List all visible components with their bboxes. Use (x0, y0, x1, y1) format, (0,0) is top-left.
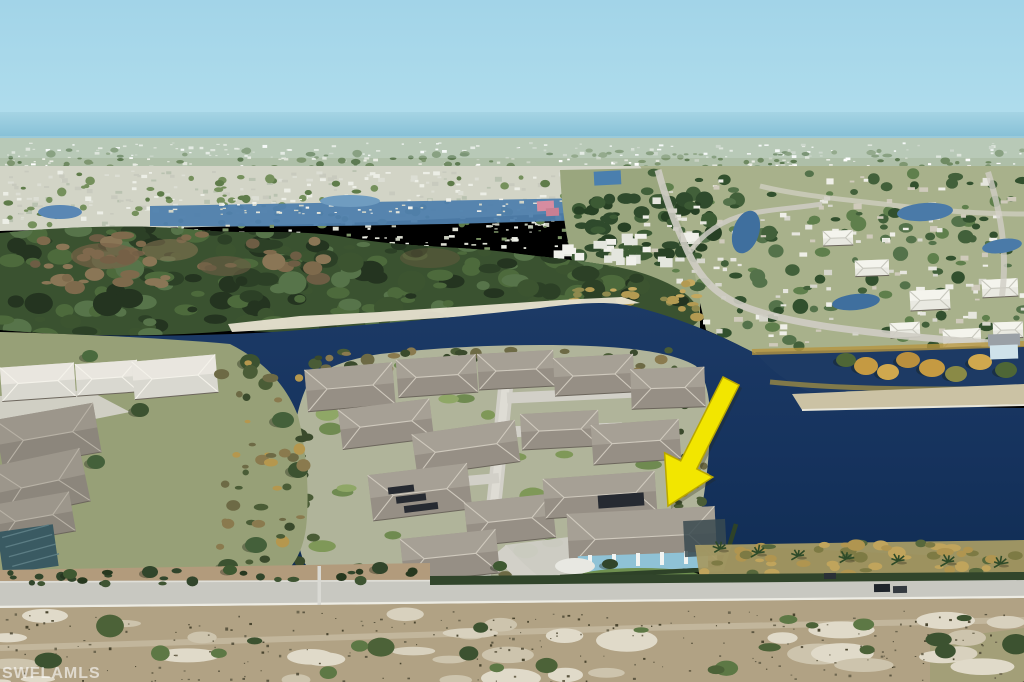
house (520, 410, 600, 450)
texture-dot (166, 171, 171, 174)
texture-dot (89, 162, 93, 164)
texture-dot (895, 631, 897, 632)
texture-dot (240, 188, 243, 190)
texture-dot (317, 212, 321, 214)
texture-dot (556, 636, 557, 637)
texture-dot (946, 256, 956, 261)
texture-dot (30, 260, 41, 268)
texture-dot (308, 540, 335, 552)
texture-dot (96, 615, 124, 638)
texture-dot (533, 203, 537, 204)
texture-dot (363, 160, 366, 162)
texture-dot (607, 629, 610, 631)
texture-dot (145, 198, 150, 202)
texture-dot (719, 655, 721, 656)
texture-dot (175, 632, 176, 633)
texture-dot (253, 196, 259, 200)
texture-dot (850, 216, 866, 231)
texture-dot (938, 188, 945, 191)
texture-dot (69, 626, 71, 627)
texture-dot (900, 281, 911, 289)
texture-dot (395, 208, 398, 209)
texture-dot (728, 611, 731, 613)
texture-dot (807, 220, 816, 225)
texture-dot (879, 291, 892, 299)
texture-dot (562, 229, 566, 232)
texture-dot (249, 178, 256, 181)
texture-dot (28, 629, 30, 630)
texture-dot (575, 222, 589, 229)
texture-dot (358, 209, 361, 211)
texture-dot (520, 632, 521, 633)
texture-dot (41, 281, 52, 285)
texture-dot (475, 178, 479, 181)
texture-dot (779, 666, 781, 667)
texture-dot (27, 198, 32, 200)
texture-dot (459, 646, 478, 660)
texture-dot (132, 211, 139, 216)
texture-dot (860, 568, 872, 572)
texture-dot (420, 184, 425, 187)
texture-dot (664, 347, 673, 353)
texture-dot (703, 320, 710, 325)
texture-dot (462, 196, 467, 200)
texture-dot (252, 202, 256, 204)
texture-dot (157, 191, 165, 197)
texture-dot (400, 350, 410, 357)
texture-dot (307, 534, 320, 542)
texture-dot (19, 213, 24, 215)
texture-dot (158, 582, 166, 586)
texture-dot (218, 670, 220, 672)
texture-dot (761, 226, 777, 240)
texture-dot (689, 670, 691, 671)
texture-dot (766, 669, 767, 670)
texture-dot (362, 211, 366, 213)
car (893, 586, 907, 593)
tree (493, 561, 507, 571)
texture-dot (995, 677, 997, 679)
texture-dot (653, 662, 654, 663)
texture-dot (295, 435, 307, 442)
texture-dot (249, 443, 256, 447)
texture-dot (951, 658, 1015, 675)
texture-dot (9, 176, 13, 178)
texture-dot (198, 679, 200, 681)
texture-dot (719, 239, 724, 243)
texture-dot (615, 624, 618, 627)
texture-dot (356, 569, 363, 575)
texture-dot (289, 649, 291, 651)
texture-dot (83, 640, 85, 641)
texture-dot (231, 643, 234, 645)
texture-dot (352, 170, 356, 172)
texture-dot (982, 645, 983, 646)
texture-dot (405, 293, 416, 299)
texture-dot (930, 226, 937, 232)
texture-dot (495, 651, 498, 653)
texture-dot (306, 179, 313, 182)
texture-dot (641, 187, 654, 195)
texture-dot (484, 618, 517, 632)
texture-dot (968, 312, 977, 319)
tree (131, 403, 149, 417)
texture-dot (431, 191, 434, 193)
texture-dot (230, 629, 232, 630)
texture-dot (348, 655, 351, 657)
texture-dot (89, 644, 92, 645)
texture-dot (214, 647, 215, 648)
texture-dot (195, 188, 198, 190)
texture-dot (985, 161, 991, 163)
texture-dot (45, 165, 47, 166)
texture-dot (110, 213, 114, 215)
texture-dot (506, 229, 509, 230)
texture-dot (613, 162, 617, 164)
texture-dot (279, 449, 291, 458)
texture-dot (730, 258, 736, 261)
texture-dot (835, 674, 837, 676)
texture-dot (335, 618, 336, 619)
texture-dot (453, 611, 455, 612)
texture-dot (881, 545, 892, 551)
texture-dot (525, 224, 528, 226)
texture-dot (1003, 615, 1005, 617)
texture-dot (933, 274, 938, 277)
texture-dot (27, 207, 35, 211)
texture-dot (212, 171, 216, 173)
texture-dot (834, 662, 836, 663)
texture-dot (880, 224, 888, 229)
texture-dot (494, 635, 497, 637)
texture-dot (369, 209, 371, 210)
texture-dot (718, 179, 723, 182)
texture-dot (125, 631, 127, 633)
texture-dot (385, 248, 397, 253)
texture-dot (303, 261, 322, 275)
texture-dot (827, 624, 829, 625)
texture-dot (886, 658, 887, 659)
texture-dot (265, 174, 275, 183)
texture-dot (567, 615, 570, 617)
texture-dot (266, 645, 269, 647)
texture-dot (816, 329, 821, 331)
texture-dot (473, 622, 488, 632)
texture-dot (659, 624, 662, 626)
texture-dot (491, 642, 493, 644)
texture-dot (805, 341, 809, 343)
texture-dot (115, 191, 122, 194)
texture-dot (188, 176, 194, 181)
texture-dot (793, 613, 795, 616)
texture-dot (718, 158, 723, 161)
texture-dot (187, 576, 199, 586)
texture-dot (425, 242, 428, 243)
texture-dot (404, 623, 405, 624)
texture-dot (551, 175, 555, 177)
texture-dot (567, 248, 576, 252)
texture-dot (262, 240, 283, 249)
texture-dot (776, 165, 778, 166)
texture-dot (658, 257, 666, 262)
texture-dot (895, 158, 900, 161)
texture-dot (780, 213, 787, 218)
texture-dot (626, 256, 636, 265)
texture-dot (451, 172, 456, 175)
texture-dot (376, 630, 378, 631)
texture-dot (982, 565, 991, 571)
texture-dot (826, 302, 832, 307)
texture-dot (10, 576, 17, 580)
texture-dot (783, 289, 788, 293)
texture-dot (742, 321, 753, 330)
texture-dot (34, 317, 45, 323)
texture-dot (187, 631, 216, 643)
texture-dot (159, 667, 162, 669)
texture-dot (903, 228, 909, 230)
texture-dot (535, 619, 536, 620)
texture-dot (675, 257, 684, 261)
texture-dot (1013, 163, 1015, 164)
texture-dot (609, 215, 617, 219)
texture-dot (593, 241, 606, 249)
texture-dot (508, 649, 510, 651)
texture-dot (203, 190, 208, 194)
texture-dot (187, 307, 197, 313)
texture-dot (416, 644, 417, 645)
texture-dot (669, 191, 673, 193)
texture-dot (81, 217, 87, 221)
texture-dot (856, 240, 861, 243)
texture-dot (85, 196, 91, 201)
texture-dot (154, 196, 158, 198)
texture-dot (945, 284, 953, 289)
texture-dot (54, 648, 57, 651)
texture-dot (243, 394, 251, 401)
texture-dot (519, 175, 524, 179)
texture-dot (221, 481, 230, 488)
texture-dot (889, 675, 891, 677)
texture-dot (867, 234, 873, 238)
texture-dot (279, 655, 281, 658)
tree (142, 566, 158, 578)
texture-dot (588, 624, 590, 626)
texture-dot (343, 245, 355, 250)
texture-dot (854, 204, 862, 210)
texture-dot (877, 216, 883, 219)
texture-dot (406, 571, 416, 577)
texture-dot (336, 573, 347, 581)
texture-dot (297, 611, 300, 614)
texture-dot (982, 253, 988, 258)
texture-dot (697, 497, 707, 506)
texture-dot (295, 374, 303, 381)
texture-dot (602, 291, 611, 296)
texture-dot (477, 210, 481, 212)
texture-dot (362, 625, 364, 626)
texture-dot (387, 607, 424, 621)
texture-dot (106, 225, 110, 227)
texture-dot (520, 234, 534, 242)
texture-dot (208, 634, 210, 635)
texture-dot (768, 163, 772, 165)
texture-dot (641, 625, 643, 626)
texture-dot (151, 180, 156, 182)
texture-dot (378, 178, 385, 182)
tree (896, 352, 920, 368)
texture-dot (433, 171, 440, 175)
texture-dot (694, 616, 695, 617)
texture-dot (774, 159, 779, 162)
texture-dot (923, 663, 924, 664)
texture-dot (828, 205, 833, 207)
texture-dot (24, 654, 26, 655)
texture-dot (512, 638, 515, 641)
texture-dot (580, 634, 581, 636)
texture-dot (560, 349, 570, 354)
texture-dot (347, 234, 351, 237)
texture-dot (405, 243, 408, 244)
texture-dot (868, 173, 880, 184)
texture-dot (556, 632, 558, 634)
texture-dot (989, 231, 998, 238)
texture-dot (386, 172, 391, 174)
car (824, 573, 836, 579)
texture-dot (907, 168, 919, 179)
texture-dot (489, 160, 493, 162)
texture-dot (251, 189, 255, 191)
texture-dot (711, 560, 723, 565)
texture-dot (890, 232, 895, 236)
texture-dot (404, 641, 407, 643)
texture-dot (337, 252, 363, 272)
texture-dot (222, 195, 226, 197)
texture-dot (48, 162, 51, 163)
texture-dot (84, 184, 89, 188)
texture-dot (392, 225, 396, 227)
house (477, 350, 555, 390)
texture-dot (141, 175, 147, 178)
texture-dot (215, 180, 224, 186)
texture-dot (348, 182, 353, 186)
texture-dot (6, 619, 9, 621)
texture-dot (779, 615, 797, 624)
texture-dot (613, 627, 615, 629)
texture-dot (351, 159, 361, 165)
texture-dot (17, 205, 22, 207)
texture-dot (923, 659, 924, 660)
texture-dot (47, 248, 73, 264)
texture-dot (831, 217, 841, 221)
texture-dot (990, 635, 992, 637)
texture-dot (985, 614, 988, 615)
texture-dot (164, 193, 170, 195)
texture-dot (979, 217, 988, 221)
texture-dot (32, 203, 38, 207)
texture-dot (956, 551, 966, 558)
tree (372, 562, 388, 574)
texture-dot (982, 315, 990, 321)
texture-dot (983, 265, 988, 267)
texture-dot (211, 649, 227, 658)
texture-dot (293, 176, 297, 178)
texture-dot (240, 571, 248, 576)
texture-dot (510, 627, 511, 628)
texture-dot (484, 288, 505, 298)
texture-dot (294, 444, 306, 455)
texture-dot (700, 221, 707, 224)
texture-dot (514, 239, 519, 242)
texture-dot (57, 171, 62, 175)
texture-dot (159, 576, 168, 580)
texture-dot (510, 239, 513, 241)
texture-dot (441, 243, 447, 246)
texture-dot (760, 219, 764, 221)
texture-dot (806, 622, 819, 628)
texture-dot (242, 470, 248, 476)
texture-dot (402, 205, 405, 206)
texture-dot (375, 237, 380, 239)
texture-dot (937, 228, 943, 232)
texture-dot (16, 193, 21, 196)
texture-dot (243, 367, 257, 379)
texture-dot (458, 242, 479, 252)
texture-dot (452, 228, 458, 232)
texture-dot (643, 215, 649, 218)
aerial-photo: SWFLAMLS (0, 0, 1024, 682)
texture-dot (414, 622, 416, 624)
texture-dot (149, 172, 152, 174)
texture-dot (780, 162, 785, 164)
texture-dot (468, 184, 473, 186)
texture-dot (303, 652, 345, 666)
texture-dot (982, 322, 990, 326)
lakefront-house-right (988, 333, 1020, 359)
texture-dot (45, 611, 48, 613)
texture-dot (274, 397, 282, 402)
texture-dot (963, 640, 964, 641)
texture-dot (65, 281, 85, 294)
texture-dot (585, 287, 595, 292)
texture-dot (464, 257, 480, 269)
texture-dot (209, 651, 211, 652)
texture-dot (730, 204, 740, 208)
texture-dot (738, 264, 742, 266)
texture-dot (611, 249, 623, 258)
texture-dot (391, 627, 392, 628)
texture-dot (572, 289, 582, 292)
texture-dot (296, 515, 305, 519)
texture-dot (18, 161, 22, 164)
texture-dot (432, 182, 438, 186)
texture-dot (302, 213, 304, 214)
texture-dot (288, 229, 291, 231)
texture-dot (883, 239, 889, 242)
texture-dot (240, 290, 263, 303)
texture-dot (306, 207, 309, 209)
tree (63, 569, 77, 579)
texture-dot (146, 187, 154, 191)
texture-dot (845, 649, 848, 651)
texture-dot (145, 278, 165, 286)
texture-dot (961, 214, 966, 217)
texture-dot (527, 161, 531, 163)
texture-dot (877, 159, 884, 162)
texture-dot (494, 228, 497, 229)
texture-dot (1007, 197, 1016, 201)
texture-dot (446, 627, 448, 628)
texture-dot (296, 459, 310, 471)
